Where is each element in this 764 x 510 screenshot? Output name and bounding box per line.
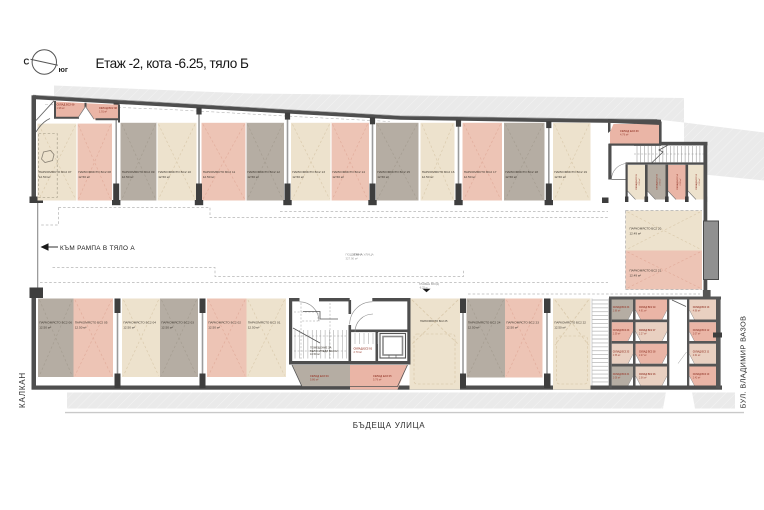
svg-text:ПАРКОМЯСТО БС2 25: ПАРКОМЯСТО БС2 25 <box>420 319 448 323</box>
svg-text:12.50 м²: 12.50 м² <box>203 175 215 179</box>
svg-text:ПАРКОМЯСТО БС2 03: ПАРКОМЯСТО БС2 03 <box>161 321 194 325</box>
svg-text:СКЛАД БС2 23: СКЛАД БС2 23 <box>613 329 630 332</box>
svg-text:1.98 м²: 1.98 м² <box>57 107 65 110</box>
svg-text:2.61 м²: 2.61 м² <box>693 354 701 357</box>
svg-text:16.50 м²: 16.50 м² <box>310 352 320 356</box>
svg-text:ПАРКОМЯСТО БС2 12: ПАРКОМЯСТО БС2 12 <box>247 170 280 174</box>
svg-text:Етаж -2, кота -6.25, тяло Б: Етаж -2, кота -6.25, тяло Б <box>96 56 250 71</box>
svg-text:СКЛАД БС2 19: СКЛАД БС2 19 <box>639 306 656 309</box>
svg-text:2.86 м²: 2.86 м² <box>613 310 621 313</box>
svg-text:ПАРКОМЯСТО БС2 11: ПАРКОМЯСТО БС2 11 <box>203 170 236 174</box>
svg-text:ПАРКОМЯСТО БС2 22: ПАРКОМЯСТО БС2 22 <box>554 321 586 325</box>
svg-text:4.91 м²: 4.91 м² <box>639 310 647 313</box>
svg-text:КЪМ РАМПА В ТЯЛО А: КЪМ РАМПА В ТЯЛО А <box>60 245 135 252</box>
svg-text:СКЛАД БС2 13: СКЛАД БС2 13 <box>693 306 710 309</box>
svg-text:ПАРКОМЯСТО БС2 06: ПАРКОМЯСТО БС2 06 <box>39 321 72 325</box>
svg-text:12.50 м²: 12.50 м² <box>158 175 170 179</box>
svg-text:4.96 м²: 4.96 м² <box>693 310 701 313</box>
svg-text:2.27 м²: 2.27 м² <box>639 332 647 335</box>
svg-text:12.50 м²: 12.50 м² <box>468 326 480 330</box>
svg-text:2.07 м²: 2.07 м² <box>693 332 701 335</box>
svg-text:ПАРКОМЯСТО БС2 17: ПАРКОМЯСТО БС2 17 <box>464 170 497 174</box>
svg-text:12.50 м²: 12.50 м² <box>122 175 134 179</box>
svg-text:СКЛАД БС2 22: СКЛАД БС2 22 <box>613 350 630 353</box>
svg-text:С: С <box>24 58 30 67</box>
svg-text:СКЛАД БС2 16: СКЛАД БС2 16 <box>639 373 656 376</box>
svg-text:5.86 м²: 5.86 м² <box>310 378 319 382</box>
svg-text:12.50 м²: 12.50 м² <box>247 175 259 179</box>
svg-text:юг: юг <box>59 65 69 74</box>
svg-text:2.66 м²: 2.66 м² <box>659 178 662 185</box>
svg-text:СКЛАД БС2 05: СКЛАД БС2 05 <box>373 374 392 378</box>
svg-text:12.50 м²: 12.50 м² <box>39 175 51 179</box>
svg-text:12.50 м²: 12.50 м² <box>554 175 566 179</box>
svg-text:12.50 м²: 12.50 м² <box>377 175 389 179</box>
svg-text:КАЛКАН: КАЛКАН <box>18 372 27 408</box>
svg-text:СКЛАД БС2 14: СКЛАД БС2 14 <box>676 173 679 189</box>
svg-text:12.50 м²: 12.50 м² <box>506 326 518 330</box>
svg-text:2.06 м²: 2.06 м² <box>639 377 647 380</box>
svg-text:ПАРКОМЯСТО БС2 08: ПАРКОМЯСТО БС2 08 <box>78 170 111 174</box>
svg-text:БЪДЕЩА УЛИЦА: БЪДЕЩА УЛИЦА <box>353 421 426 430</box>
svg-text:СКЛАД БС2 17: СКЛАД БС2 17 <box>639 329 656 332</box>
svg-text:СКЛАД БС2 01: СКЛАД БС2 01 <box>354 347 373 351</box>
svg-text:12.50 м²: 12.50 м² <box>292 175 304 179</box>
svg-text:СКЛАД БС2 18: СКЛАД БС2 18 <box>639 350 656 353</box>
svg-text:12.50 м²: 12.50 м² <box>75 326 87 330</box>
svg-text:12.50 м²: 12.50 м² <box>161 326 173 330</box>
svg-text:СКЛАД БС2 21: СКЛАД БС2 21 <box>613 373 630 376</box>
svg-text:2.59 м²: 2.59 м² <box>613 332 621 335</box>
svg-text:ПАРКОМЯСТО БС2 23: ПАРКОМЯСТО БС2 23 <box>506 321 539 325</box>
svg-text:СКЛАД БС2 10: СКЛАД БС2 10 <box>693 373 710 376</box>
svg-text:СКЛАД БС2 13: СКЛАД БС2 13 <box>695 173 698 189</box>
svg-text:СКЛАД БС2 12: СКЛАД БС2 12 <box>693 329 710 332</box>
svg-text:ПАРКОМЯСТО БС2 19: ПАРКОМЯСТО БС2 19 <box>554 170 587 174</box>
svg-text:СКЛАД БС2 09: СКЛАД БС2 09 <box>57 104 76 107</box>
svg-text:ПАРКОМЯСТО БС2 04: ПАРКОМЯСТО БС2 04 <box>123 321 156 325</box>
svg-text:ПАРКОМЯСТО БС2 13: ПАРКОМЯСТО БС2 13 <box>292 170 325 174</box>
svg-text:12.50 м²: 12.50 м² <box>248 326 260 330</box>
svg-text:12.50 м²: 12.50 м² <box>332 175 344 179</box>
svg-text:12.50 м²: 12.50 м² <box>464 175 476 179</box>
svg-text:СКЛАД БС2 30: СКЛАД БС2 30 <box>620 129 639 133</box>
svg-text:2.27 м²: 2.27 м² <box>639 354 647 357</box>
svg-text:ПАРКОМЯСТО БС2 24: ПАРКОМЯСТО БС2 24 <box>468 321 501 325</box>
svg-text:ПАРКОМЯСТО БС2 02: ПАРКОМЯСТО БС2 02 <box>208 321 241 325</box>
svg-text:ПАРКОМЯСТО БС2 15: ПАРКОМЯСТО БС2 15 <box>377 170 410 174</box>
svg-text:4.79 м²: 4.79 м² <box>620 133 629 137</box>
svg-text:ПАРКОМЯСТО БС2 20: ПАРКОМЯСТО БС2 20 <box>630 227 662 231</box>
svg-text:СКЛАД БС2 24: СКЛАД БС2 24 <box>613 306 630 309</box>
svg-text:СКЛАД БС2 15: СКЛАД БС2 15 <box>635 173 638 189</box>
svg-text:12.50 м²: 12.50 м² <box>505 175 517 179</box>
svg-text:12.49 м²: 12.49 м² <box>630 274 641 278</box>
svg-text:2.66 м²: 2.66 м² <box>638 178 641 185</box>
svg-text:ПАРКОМЯСТО БС2 07: ПАРКОМЯСТО БС2 07 <box>39 170 72 174</box>
svg-text:ПАРКОМЯСТО БС2 10: ПАРКОМЯСТО БС2 10 <box>158 170 191 174</box>
svg-text:2.06 м²: 2.06 м² <box>613 377 621 380</box>
svg-text:СКЛАД БС2 16: СКЛАД БС2 16 <box>656 173 659 189</box>
svg-text:ПАРКОМЯСТО БС2 16: ПАРКОМЯСТО БС2 16 <box>422 170 455 174</box>
svg-text:12.50 м²: 12.50 м² <box>422 175 434 179</box>
svg-text:СКЛАД БС2 08: СКЛАД БС2 08 <box>99 107 118 110</box>
svg-text:12.50 м²: 12.50 м² <box>39 326 51 330</box>
svg-text:327.90 м²: 327.90 м² <box>346 256 358 260</box>
svg-text:5.79 м²: 5.79 м² <box>373 378 382 382</box>
svg-text:12.50 м²: 12.50 м² <box>78 175 90 179</box>
svg-text:12.50 м²: 12.50 м² <box>123 326 135 330</box>
svg-text:2.56 м²: 2.56 м² <box>613 354 621 357</box>
svg-text:СКЛАД БС2 03: СКЛАД БС2 03 <box>310 374 329 378</box>
svg-text:ПАРКОМЯСТО БС2 09: ПАРКОМЯСТО БС2 09 <box>122 170 155 174</box>
svg-text:1.91 м²: 1.91 м² <box>99 111 107 114</box>
svg-text:2.43 м²: 2.43 м² <box>693 377 701 380</box>
svg-text:ПАРКОМЯСТО БС2 05: ПАРКОМЯСТО БС2 05 <box>75 321 108 325</box>
svg-text:ПАРКОМЯСТО БС2 18: ПАРКОМЯСТО БС2 18 <box>505 170 538 174</box>
svg-text:ПАРКОМЯСТО БС2 14: ПАРКОМЯСТО БС2 14 <box>332 170 365 174</box>
svg-text:2.66 м²: 2.66 м² <box>698 178 701 185</box>
svg-text:2.70 м²: 2.70 м² <box>354 350 363 354</box>
svg-text:ГЛАВЕН ВХОД: ГЛАВЕН ВХОД <box>419 282 439 286</box>
svg-text:СКЛАД БС2 11: СКЛАД БС2 11 <box>693 350 710 353</box>
svg-text:12.50 м²: 12.50 м² <box>208 326 220 330</box>
svg-text:12.50 м²: 12.50 м² <box>554 326 565 330</box>
svg-text:ПАРКОМЯСТО БС2 01: ПАРКОМЯСТО БС2 01 <box>248 321 281 325</box>
svg-text:ПАРКОМЯСТО БС2 21: ПАРКОМЯСТО БС2 21 <box>630 269 662 273</box>
svg-text:2.66 м²: 2.66 м² <box>679 178 682 185</box>
svg-text:БУЛ. ВЛАДИМИР ВАЗОВ: БУЛ. ВЛАДИМИР ВАЗОВ <box>739 316 748 409</box>
svg-text:12.49 м²: 12.49 м² <box>630 232 641 236</box>
